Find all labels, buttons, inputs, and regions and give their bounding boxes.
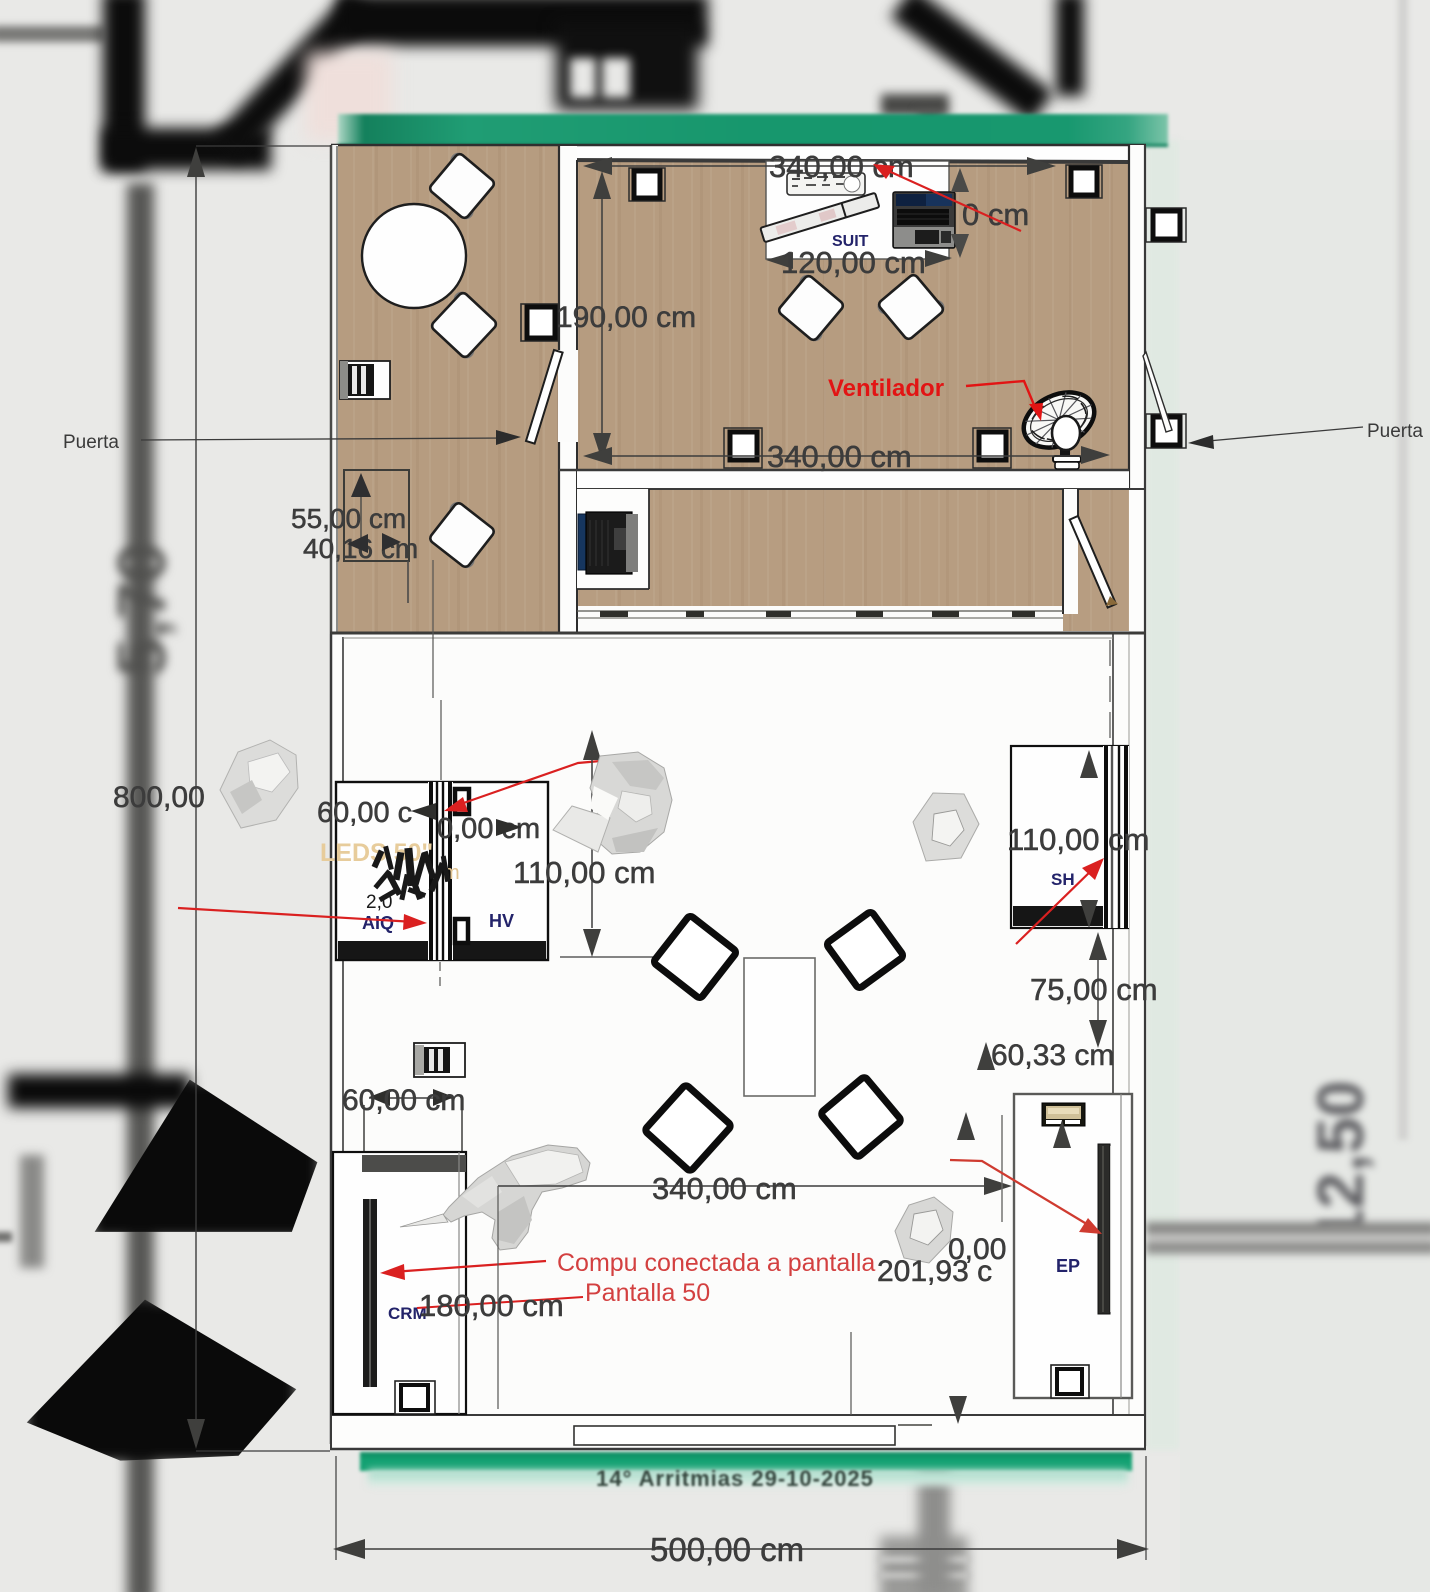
svg-text:201,93 c: 201,93 c: [877, 1255, 992, 1288]
svg-text:110,00 cm: 110,00 cm: [513, 855, 655, 890]
svg-text:Compu conectada a pantalla: Compu conectada a pantalla: [557, 1249, 875, 1277]
svg-text:120,00 cm: 120,00 cm: [781, 245, 926, 280]
svg-text:340,00 cm: 340,00 cm: [767, 439, 912, 474]
svg-text:Ventilador: Ventilador: [828, 375, 944, 402]
svg-text:800,00: 800,00: [113, 781, 205, 814]
svg-text:110,00 cm: 110,00 cm: [1007, 822, 1149, 857]
svg-text:Puerta: Puerta: [1367, 421, 1423, 442]
svg-text:60,00 cm: 60,00 cm: [342, 1084, 465, 1117]
svg-text:EP: EP: [1056, 1256, 1080, 1276]
svg-text:0,00 cm: 0,00 cm: [437, 813, 540, 845]
svg-text:HV: HV: [489, 911, 514, 931]
svg-text:Puerta: Puerta: [63, 432, 119, 453]
svg-text:75,00 cm: 75,00 cm: [1030, 972, 1158, 1007]
svg-text:SH: SH: [1051, 870, 1075, 889]
svg-text:190,00 cm: 190,00 cm: [556, 301, 696, 334]
svg-text:Pantalla 50: Pantalla 50: [585, 1279, 710, 1307]
svg-text:60,33 cm: 60,33 cm: [991, 1039, 1114, 1072]
svg-text:0 cm: 0 cm: [962, 197, 1029, 232]
svg-text:55,00 cm: 55,00 cm: [291, 503, 406, 534]
svg-text:340,00 cm: 340,00 cm: [652, 1171, 797, 1206]
svg-text:500,00 cm: 500,00 cm: [650, 1531, 804, 1568]
svg-text:180,00 cm: 180,00 cm: [419, 1288, 564, 1323]
svg-text:AIQ: AIQ: [362, 913, 394, 933]
svg-text:60,00 c: 60,00 c: [317, 797, 412, 829]
svg-text:2,0: 2,0: [366, 892, 392, 913]
